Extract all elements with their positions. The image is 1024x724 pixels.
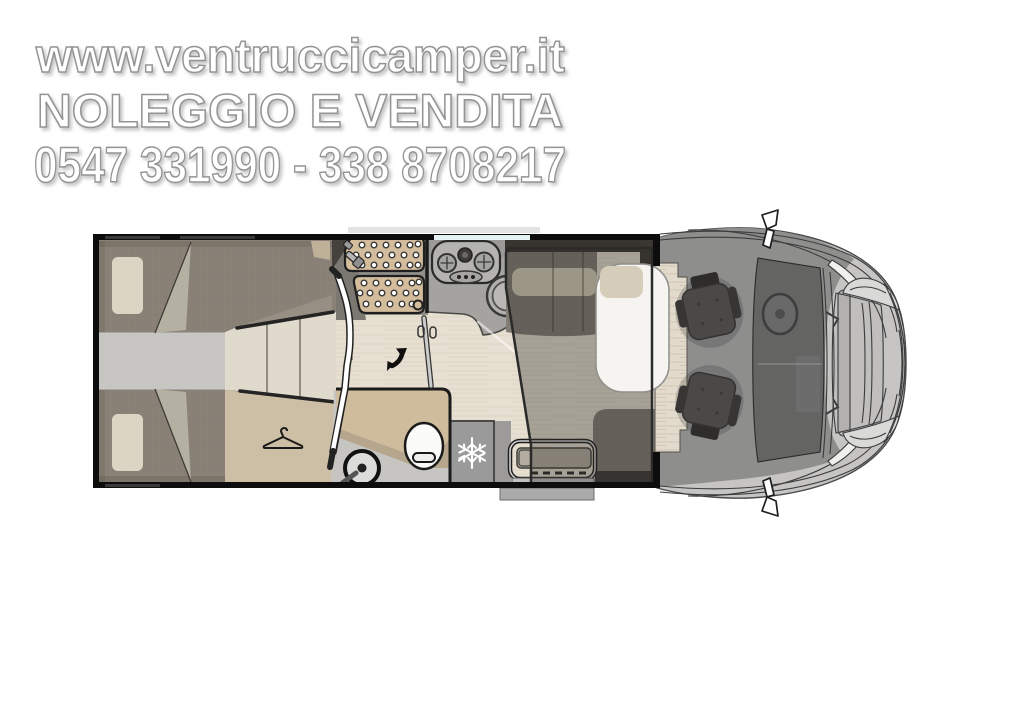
svg-text:0547 331990 - 338 8708217: 0547 331990 - 338 8708217 xyxy=(34,137,566,193)
svg-text:www.ventruccicamper.it: www.ventruccicamper.it xyxy=(35,29,565,82)
svg-text:NOLEGGIO E VENDITA: NOLEGGIO E VENDITA xyxy=(37,84,563,137)
